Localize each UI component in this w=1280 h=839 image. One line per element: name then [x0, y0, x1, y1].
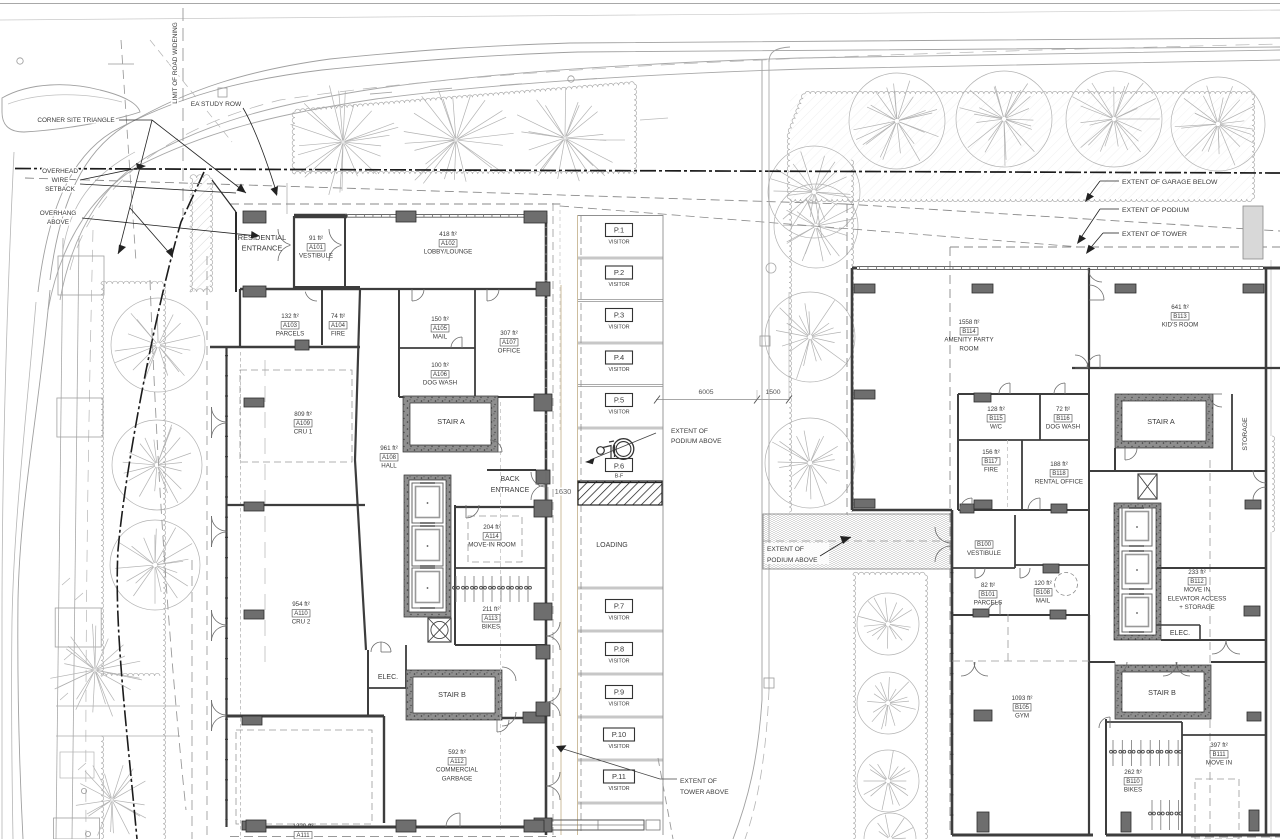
svg-text:STAIR B: STAIR B: [1148, 688, 1176, 697]
svg-text:A112: A112: [450, 759, 464, 765]
svg-text:A103: A103: [283, 323, 298, 329]
svg-text:P.5: P.5: [614, 396, 624, 405]
svg-text:ELEVATOR ACCESS: ELEVATOR ACCESS: [1168, 595, 1227, 602]
svg-text:P.7: P.7: [614, 602, 624, 611]
svg-text:VISITOR: VISITOR: [608, 409, 629, 415]
svg-text:74 ft²: 74 ft²: [331, 313, 345, 320]
svg-text:128 ft²: 128 ft²: [987, 406, 1005, 413]
svg-text:204 ft²: 204 ft²: [483, 524, 501, 531]
svg-text:OVERHEAD: OVERHEAD: [42, 168, 78, 175]
svg-text:B110: B110: [1126, 779, 1140, 785]
svg-text:EXTENT OF: EXTENT OF: [671, 428, 708, 435]
svg-text:B105: B105: [1015, 705, 1030, 711]
svg-text:CORNER SITE TRIANGLE: CORNER SITE TRIANGLE: [37, 117, 114, 124]
svg-text:72 ft²: 72 ft²: [1056, 406, 1070, 413]
svg-text:RENTAL OFFICE: RENTAL OFFICE: [1035, 479, 1083, 486]
svg-text:FIRE: FIRE: [331, 331, 345, 338]
svg-text:A104: A104: [331, 323, 346, 329]
svg-text:VISITOR: VISITOR: [608, 239, 629, 245]
svg-text:B-F: B-F: [615, 474, 624, 480]
svg-text:100 ft²: 100 ft²: [431, 362, 449, 369]
svg-text:STAIR B: STAIR B: [438, 690, 466, 699]
svg-text:CRU 2: CRU 2: [292, 619, 311, 626]
svg-text:STAIR A: STAIR A: [437, 417, 465, 426]
svg-text:MOVE IN: MOVE IN: [1206, 760, 1232, 767]
svg-text:EXTENT OF: EXTENT OF: [767, 546, 804, 553]
svg-text:82 ft²: 82 ft²: [981, 582, 995, 589]
svg-text:1630: 1630: [555, 487, 572, 496]
svg-text:P.2: P.2: [614, 268, 624, 277]
svg-text:P.8: P.8: [614, 645, 624, 654]
svg-text:A108: A108: [382, 455, 397, 461]
svg-text:1500: 1500: [765, 389, 780, 396]
svg-text:LOADING: LOADING: [596, 542, 628, 549]
svg-text:A111: A111: [296, 833, 310, 839]
svg-text:MOVE-IN ROOM: MOVE-IN ROOM: [468, 542, 515, 549]
svg-text:233 ft²: 233 ft²: [1188, 569, 1206, 576]
svg-text:WIRE: WIRE: [52, 177, 69, 184]
svg-text:VISITOR: VISITOR: [608, 615, 629, 621]
svg-text:592 ft²: 592 ft²: [448, 749, 466, 756]
svg-text:961 ft²: 961 ft²: [380, 445, 398, 452]
svg-text:B116: B116: [1056, 416, 1070, 422]
svg-text:418 ft²: 418 ft²: [439, 231, 457, 238]
svg-text:B118: B118: [1052, 471, 1066, 477]
svg-text:A101: A101: [309, 245, 324, 251]
svg-text:91 ft²: 91 ft²: [309, 235, 323, 242]
svg-text:W/C: W/C: [990, 424, 1003, 431]
svg-text:BIKES: BIKES: [1124, 787, 1142, 794]
svg-text:120 ft²: 120 ft²: [1034, 580, 1052, 587]
svg-text:B108: B108: [1036, 590, 1051, 596]
svg-text:ELEC.: ELEC.: [378, 674, 398, 681]
svg-text:DOG WASH: DOG WASH: [423, 380, 457, 387]
svg-text:ROOM: ROOM: [959, 345, 978, 352]
svg-text:B101: B101: [981, 592, 996, 598]
svg-text:AMENITY PARTY: AMENITY PARTY: [944, 337, 993, 344]
svg-text:P.10: P.10: [612, 730, 626, 739]
svg-text:A107: A107: [502, 340, 517, 346]
svg-text:VISITOR: VISITOR: [608, 324, 629, 330]
svg-text:OFFICE: OFFICE: [498, 348, 521, 355]
svg-text:641 ft²: 641 ft²: [1171, 304, 1189, 311]
svg-text:BIKES: BIKES: [482, 624, 500, 631]
svg-text:A105: A105: [433, 326, 448, 332]
svg-text:EXTENT OF TOWER: EXTENT OF TOWER: [1122, 231, 1187, 238]
svg-text:LOBBY/LOUNGE: LOBBY/LOUNGE: [424, 249, 473, 256]
svg-text:VISITOR: VISITOR: [608, 786, 629, 792]
svg-text:MAIL: MAIL: [1036, 598, 1051, 605]
svg-text:1558 ft²: 1558 ft²: [959, 319, 980, 326]
svg-text:954 ft²: 954 ft²: [292, 601, 310, 608]
svg-text:A109: A109: [296, 421, 311, 427]
svg-text:PARCELS: PARCELS: [276, 331, 304, 338]
svg-text:1093 ft²: 1093 ft²: [1012, 695, 1033, 702]
svg-text:ELEC.: ELEC.: [1170, 630, 1190, 637]
svg-text:P.6: P.6: [614, 462, 624, 471]
svg-text:188 ft²: 188 ft²: [1050, 461, 1068, 468]
svg-text:307 ft²: 307 ft²: [500, 330, 518, 337]
svg-text:VISITOR: VISITOR: [608, 658, 629, 664]
svg-text:PODIUM ABOVE: PODIUM ABOVE: [767, 557, 818, 564]
svg-text:LIMIT OF ROAD WIDENING: LIMIT OF ROAD WIDENING: [172, 22, 179, 104]
svg-text:P.3: P.3: [614, 311, 624, 320]
svg-text:A102: A102: [441, 241, 456, 247]
svg-text:VISITOR: VISITOR: [608, 282, 629, 288]
svg-text:262 ft²: 262 ft²: [1124, 769, 1142, 776]
svg-text:809 ft²: 809 ft²: [294, 411, 312, 418]
svg-text:132 ft²: 132 ft²: [281, 313, 299, 320]
svg-text:211 ft²: 211 ft²: [482, 606, 499, 613]
svg-text:MOVE IN: MOVE IN: [1184, 587, 1210, 594]
svg-text:ENTRANCE: ENTRANCE: [242, 244, 283, 253]
svg-text:B100: B100: [977, 542, 992, 548]
svg-text:1320 ft²: 1320 ft²: [293, 823, 314, 830]
svg-text:SETBACK: SETBACK: [45, 186, 76, 193]
svg-text:FIRE: FIRE: [984, 467, 998, 474]
svg-text:B111: B111: [1212, 752, 1226, 758]
svg-text:VESTIBULE: VESTIBULE: [967, 550, 1001, 557]
svg-text:EXTENT OF GARAGE BELOW: EXTENT OF GARAGE BELOW: [1122, 179, 1218, 186]
svg-text:KID'S ROOM: KID'S ROOM: [1162, 322, 1199, 329]
svg-text:EA STUDY ROW: EA STUDY ROW: [191, 101, 242, 108]
svg-text:GARBAGE: GARBAGE: [442, 775, 473, 782]
svg-text:DOG WASH: DOG WASH: [1046, 424, 1080, 431]
svg-text:B112: B112: [1190, 579, 1204, 585]
svg-text:6005: 6005: [698, 389, 713, 396]
svg-text:EXTENT OF: EXTENT OF: [680, 778, 717, 785]
svg-text:VISITOR: VISITOR: [608, 701, 629, 707]
svg-text:BACK: BACK: [500, 476, 519, 483]
svg-text:VISITOR: VISITOR: [608, 367, 629, 373]
svg-text:B114: B114: [962, 329, 976, 335]
svg-text:A106: A106: [433, 372, 448, 378]
svg-text:+ STORAGE: + STORAGE: [1179, 604, 1214, 611]
svg-text:P.9: P.9: [614, 688, 624, 697]
svg-text:OVERHANG: OVERHANG: [40, 210, 77, 217]
svg-text:PODIUM ABOVE: PODIUM ABOVE: [671, 438, 722, 445]
svg-text:VISITOR: VISITOR: [608, 744, 629, 750]
svg-text:ABOVE: ABOVE: [47, 219, 69, 226]
svg-text:STORAGE: STORAGE: [1242, 417, 1249, 451]
svg-text:B113: B113: [1173, 314, 1187, 320]
svg-text:VESTIBULE: VESTIBULE: [299, 253, 333, 260]
svg-text:150 ft²: 150 ft²: [431, 316, 449, 323]
svg-text:ENTRANCE: ENTRANCE: [491, 487, 530, 494]
svg-text:HALL: HALL: [381, 463, 397, 470]
svg-text:B115: B115: [989, 416, 1003, 422]
svg-text:MAIL: MAIL: [433, 334, 448, 341]
svg-text:EXTENT OF PODIUM: EXTENT OF PODIUM: [1122, 207, 1189, 214]
svg-text:P.4: P.4: [614, 353, 624, 362]
svg-text:B117: B117: [984, 459, 998, 465]
svg-text:STAIR A: STAIR A: [1147, 417, 1175, 426]
svg-text:COMMERCIAL: COMMERCIAL: [436, 767, 478, 774]
svg-text:P.11: P.11: [612, 772, 626, 781]
svg-text:A113: A113: [484, 616, 498, 622]
svg-text:A114: A114: [485, 534, 499, 540]
svg-text:TOWER ABOVE: TOWER ABOVE: [680, 789, 729, 796]
svg-text:GYM: GYM: [1015, 713, 1029, 720]
svg-text:CRU 1: CRU 1: [294, 429, 313, 436]
svg-text:A110: A110: [294, 611, 308, 617]
svg-text:P.1: P.1: [614, 226, 624, 235]
svg-text:397 ft²: 397 ft²: [1210, 742, 1228, 749]
svg-text:156 ft²: 156 ft²: [982, 449, 1000, 456]
svg-text:PARCELS: PARCELS: [974, 600, 1002, 607]
